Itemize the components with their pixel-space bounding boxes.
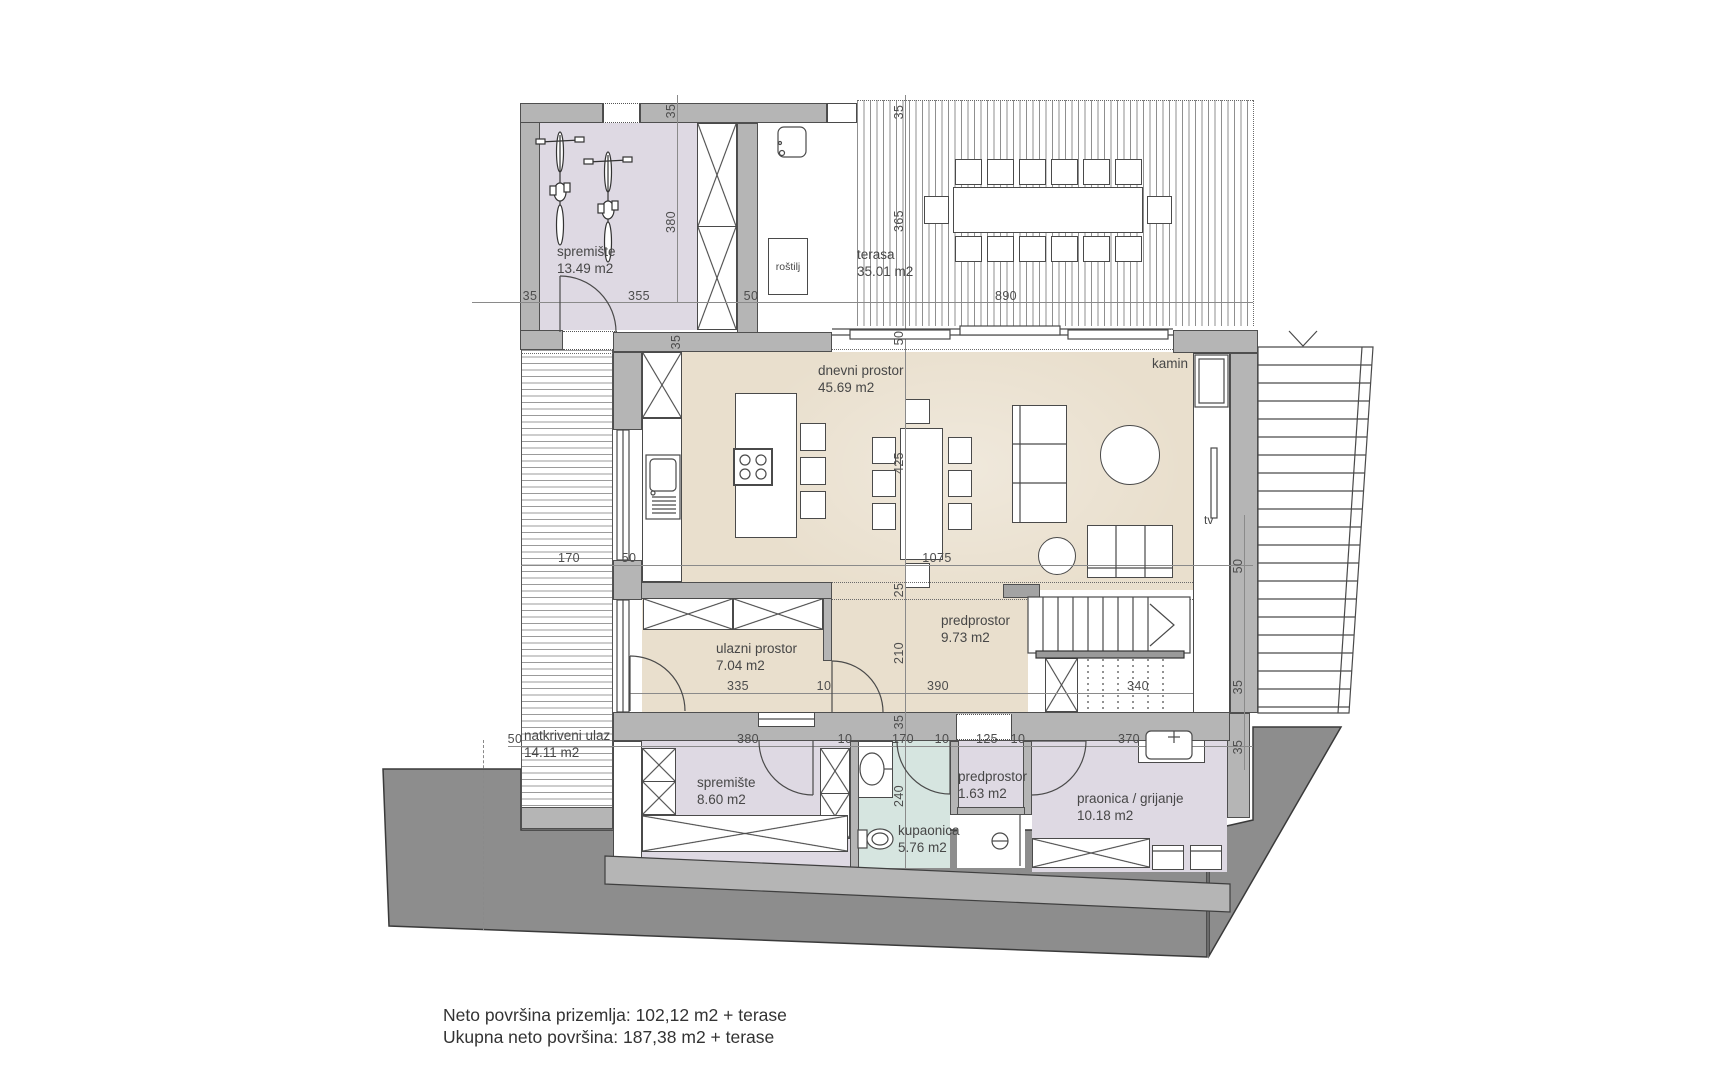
terrace-chair xyxy=(924,196,949,224)
window-opening xyxy=(603,103,640,123)
zone-dotted xyxy=(832,599,1193,600)
dimension-label: 50 xyxy=(892,331,906,346)
dimension-label: 10 xyxy=(817,679,832,693)
terrace-chair xyxy=(1051,159,1078,185)
dining-chair xyxy=(872,503,896,530)
hall-wardrobe xyxy=(643,598,733,630)
island-stool xyxy=(800,491,826,519)
wall xyxy=(1173,330,1258,353)
laundry-shelf xyxy=(1032,838,1150,868)
island-stool xyxy=(800,423,826,451)
grill-nook-floor xyxy=(758,123,857,332)
room-area: 13.49 m2 xyxy=(557,260,616,277)
dimension-label: 35 xyxy=(523,289,538,303)
wall-stub xyxy=(823,598,832,661)
terrace-chair xyxy=(1019,236,1046,262)
dimension-label: 35 xyxy=(664,104,678,119)
dining-chair xyxy=(905,563,930,588)
dimension-label: 50 xyxy=(744,289,759,303)
wall xyxy=(850,741,859,870)
dining-chair xyxy=(905,399,930,424)
dimension-label: 365 xyxy=(892,210,906,232)
wall xyxy=(737,123,758,352)
kitchen-tall-cabinet xyxy=(642,352,682,418)
coffee-table-round xyxy=(1100,425,1160,485)
dimension-label: 50 xyxy=(508,732,523,746)
kitchen-counter xyxy=(642,418,682,582)
terrace-chair xyxy=(955,236,982,262)
room-area: 10.18 m2 xyxy=(1077,807,1184,824)
room-area: 8.60 m2 xyxy=(697,791,756,808)
storage-shelf xyxy=(642,748,676,782)
island-stool xyxy=(800,457,826,485)
terrace-chair xyxy=(1115,159,1142,185)
wall xyxy=(520,103,540,350)
room-name: natkriveni ulaz xyxy=(524,727,610,744)
room-name: terasa xyxy=(857,246,913,263)
wall xyxy=(613,352,642,430)
dimension-label: 240 xyxy=(892,785,906,807)
door-opening xyxy=(563,331,617,350)
dimension-line xyxy=(1244,515,1245,770)
dimension-label: 10 xyxy=(1011,732,1026,746)
dimension-label: 35 xyxy=(892,105,906,120)
dimension-label: 425 xyxy=(892,452,906,474)
room-label-kupaonica: kupaonica5.76 m2 xyxy=(898,822,960,856)
room-label-spremiste-dolje: spremište8.60 m2 xyxy=(697,774,756,808)
dimension-label: 210 xyxy=(892,642,906,664)
dimension-label: 380 xyxy=(737,732,759,746)
pillar xyxy=(827,103,857,123)
side-table-round xyxy=(1038,537,1076,575)
terrace-chair xyxy=(955,159,982,185)
summary-line-1: Neto površina prizemlja: 102,12 m2 + ter… xyxy=(443,1004,787,1026)
dimension-label: 10 xyxy=(935,732,950,746)
room-area: 14.11 m2 xyxy=(524,744,610,761)
room-label-natkriveni-ulaz: natkriveni ulaz14.11 m2 xyxy=(524,727,610,761)
storage-bottom-left-strip xyxy=(613,741,642,868)
room-label-predprostor-mali: predprostor1.63 m2 xyxy=(958,768,1027,802)
tv-label: tv xyxy=(1204,512,1213,529)
hall-wardrobe xyxy=(733,598,823,630)
storage-shelf xyxy=(820,748,850,794)
storage-crate xyxy=(642,815,848,852)
room-label-praonica: praonica / grijanje10.18 m2 xyxy=(1077,790,1184,824)
dining-chair xyxy=(872,470,896,497)
sofa-2 xyxy=(1087,525,1173,578)
room-name: predprostor xyxy=(958,768,1027,785)
dimension-label: 390 xyxy=(927,679,949,693)
dimension-line xyxy=(472,302,1253,303)
room-name: spremište xyxy=(557,243,616,260)
dimension-label: 355 xyxy=(628,289,650,303)
dimension-label: 50 xyxy=(622,551,637,565)
wall xyxy=(613,560,642,600)
dining-table xyxy=(900,428,943,560)
dimension-label: 340 xyxy=(1127,679,1149,693)
stair-closet xyxy=(1045,658,1078,712)
window xyxy=(617,600,629,712)
wall xyxy=(613,332,832,352)
terrace-chair xyxy=(987,159,1014,185)
walkway-dotted xyxy=(521,353,613,354)
dimension-label: 35 xyxy=(1231,680,1245,695)
dimension-label: 335 xyxy=(727,679,749,693)
terrace-chair xyxy=(987,236,1014,262)
dining-chair xyxy=(948,503,972,530)
closet-cell xyxy=(697,123,737,227)
room-name: praonica / grijanje xyxy=(1077,790,1184,807)
dimension-label: 170 xyxy=(892,732,914,746)
sofa xyxy=(1012,405,1067,523)
terrace-chair xyxy=(1019,159,1046,185)
dimension-label: 170 xyxy=(558,551,580,565)
room-name: spremište xyxy=(697,774,756,791)
dimension-label: 25 xyxy=(892,583,906,598)
entry-door-box xyxy=(758,712,815,727)
storage-shelf xyxy=(642,781,676,815)
glass-front xyxy=(832,326,1173,339)
closet-cell xyxy=(697,226,737,330)
terrace-chair xyxy=(1083,159,1110,185)
shower-area-floor xyxy=(957,815,1025,868)
wall xyxy=(520,103,603,123)
washer xyxy=(1152,845,1184,870)
dimension-label: 10 xyxy=(838,732,853,746)
dining-chair xyxy=(948,437,972,464)
terrace-edge-dotted xyxy=(857,100,1253,101)
hall-wall xyxy=(640,582,832,599)
room-area: 7.04 m2 xyxy=(716,657,797,674)
dimension-label: 35 xyxy=(1231,740,1245,755)
dimension-line xyxy=(521,565,1253,566)
dimension-label: 125 xyxy=(976,732,998,746)
room-label-terasa: terasa35.01 m2 xyxy=(857,246,913,280)
fireplace-label: kamin xyxy=(1152,355,1188,372)
terrace-chair xyxy=(1051,236,1078,262)
dimension-label: 50 xyxy=(1231,559,1245,574)
window xyxy=(617,430,629,560)
stair-newel-wall xyxy=(1003,584,1040,598)
room-area: 35.01 m2 xyxy=(857,263,913,280)
room-label-spremiste-gore: spremište13.49 m2 xyxy=(557,243,616,277)
wall xyxy=(521,807,613,829)
dimension-line xyxy=(508,746,1253,747)
room-area: 5.76 m2 xyxy=(898,839,960,856)
dimension-label: 1075 xyxy=(922,551,951,565)
dimension-label: 370 xyxy=(1118,732,1140,746)
zone-dotted xyxy=(832,582,1193,583)
terrain-dashed-line xyxy=(483,740,484,930)
dimension-line xyxy=(620,693,1193,694)
area-summary: Neto površina prizemlja: 102,12 m2 + ter… xyxy=(443,1004,787,1048)
dimension-line xyxy=(677,95,678,302)
floor-plan: roštilj xyxy=(0,0,1729,1080)
fireplace-column xyxy=(1193,353,1230,713)
wall xyxy=(957,807,1025,815)
terrace-table xyxy=(953,187,1143,233)
room-name: predprostor xyxy=(941,612,1010,629)
dimension-label: 890 xyxy=(995,289,1017,303)
bath-counter xyxy=(857,741,893,798)
dryer xyxy=(1190,845,1222,870)
terrace-edge-dotted xyxy=(1253,100,1254,326)
dimension-label: 35 xyxy=(669,335,683,350)
terrace-chair xyxy=(1115,236,1142,262)
wall xyxy=(520,330,563,350)
room-name: kupaonica xyxy=(898,822,960,839)
room-area: 9.73 m2 xyxy=(941,629,1010,646)
room-label-ulazni-prostor: ulazni prostor7.04 m2 xyxy=(716,640,797,674)
terrace-chair xyxy=(1147,196,1172,224)
kitchen-island xyxy=(735,393,797,538)
summary-line-2: Ukupna neto površina: 187,38 m2 + terase xyxy=(443,1026,787,1048)
dining-chair xyxy=(948,470,972,497)
grill-label: roštilj xyxy=(776,261,801,273)
wall xyxy=(1227,713,1250,818)
glass-front-dotted xyxy=(832,349,1173,350)
room-name: ulazni prostor xyxy=(716,640,797,657)
grill-box: roštilj xyxy=(768,238,808,295)
exterior-stairs xyxy=(1258,331,1373,713)
dimension-label: 380 xyxy=(664,211,678,233)
room-name: dnevni prostor xyxy=(818,362,904,379)
room-label-dnevni-prostor: dnevni prostor45.69 m2 xyxy=(818,362,904,396)
room-area: 45.69 m2 xyxy=(818,379,904,396)
terrace-chair xyxy=(1083,236,1110,262)
room-label-predprostor: predprostor9.73 m2 xyxy=(941,612,1010,646)
dimension-label: 35 xyxy=(892,715,906,730)
room-area: 1.63 m2 xyxy=(958,785,1027,802)
